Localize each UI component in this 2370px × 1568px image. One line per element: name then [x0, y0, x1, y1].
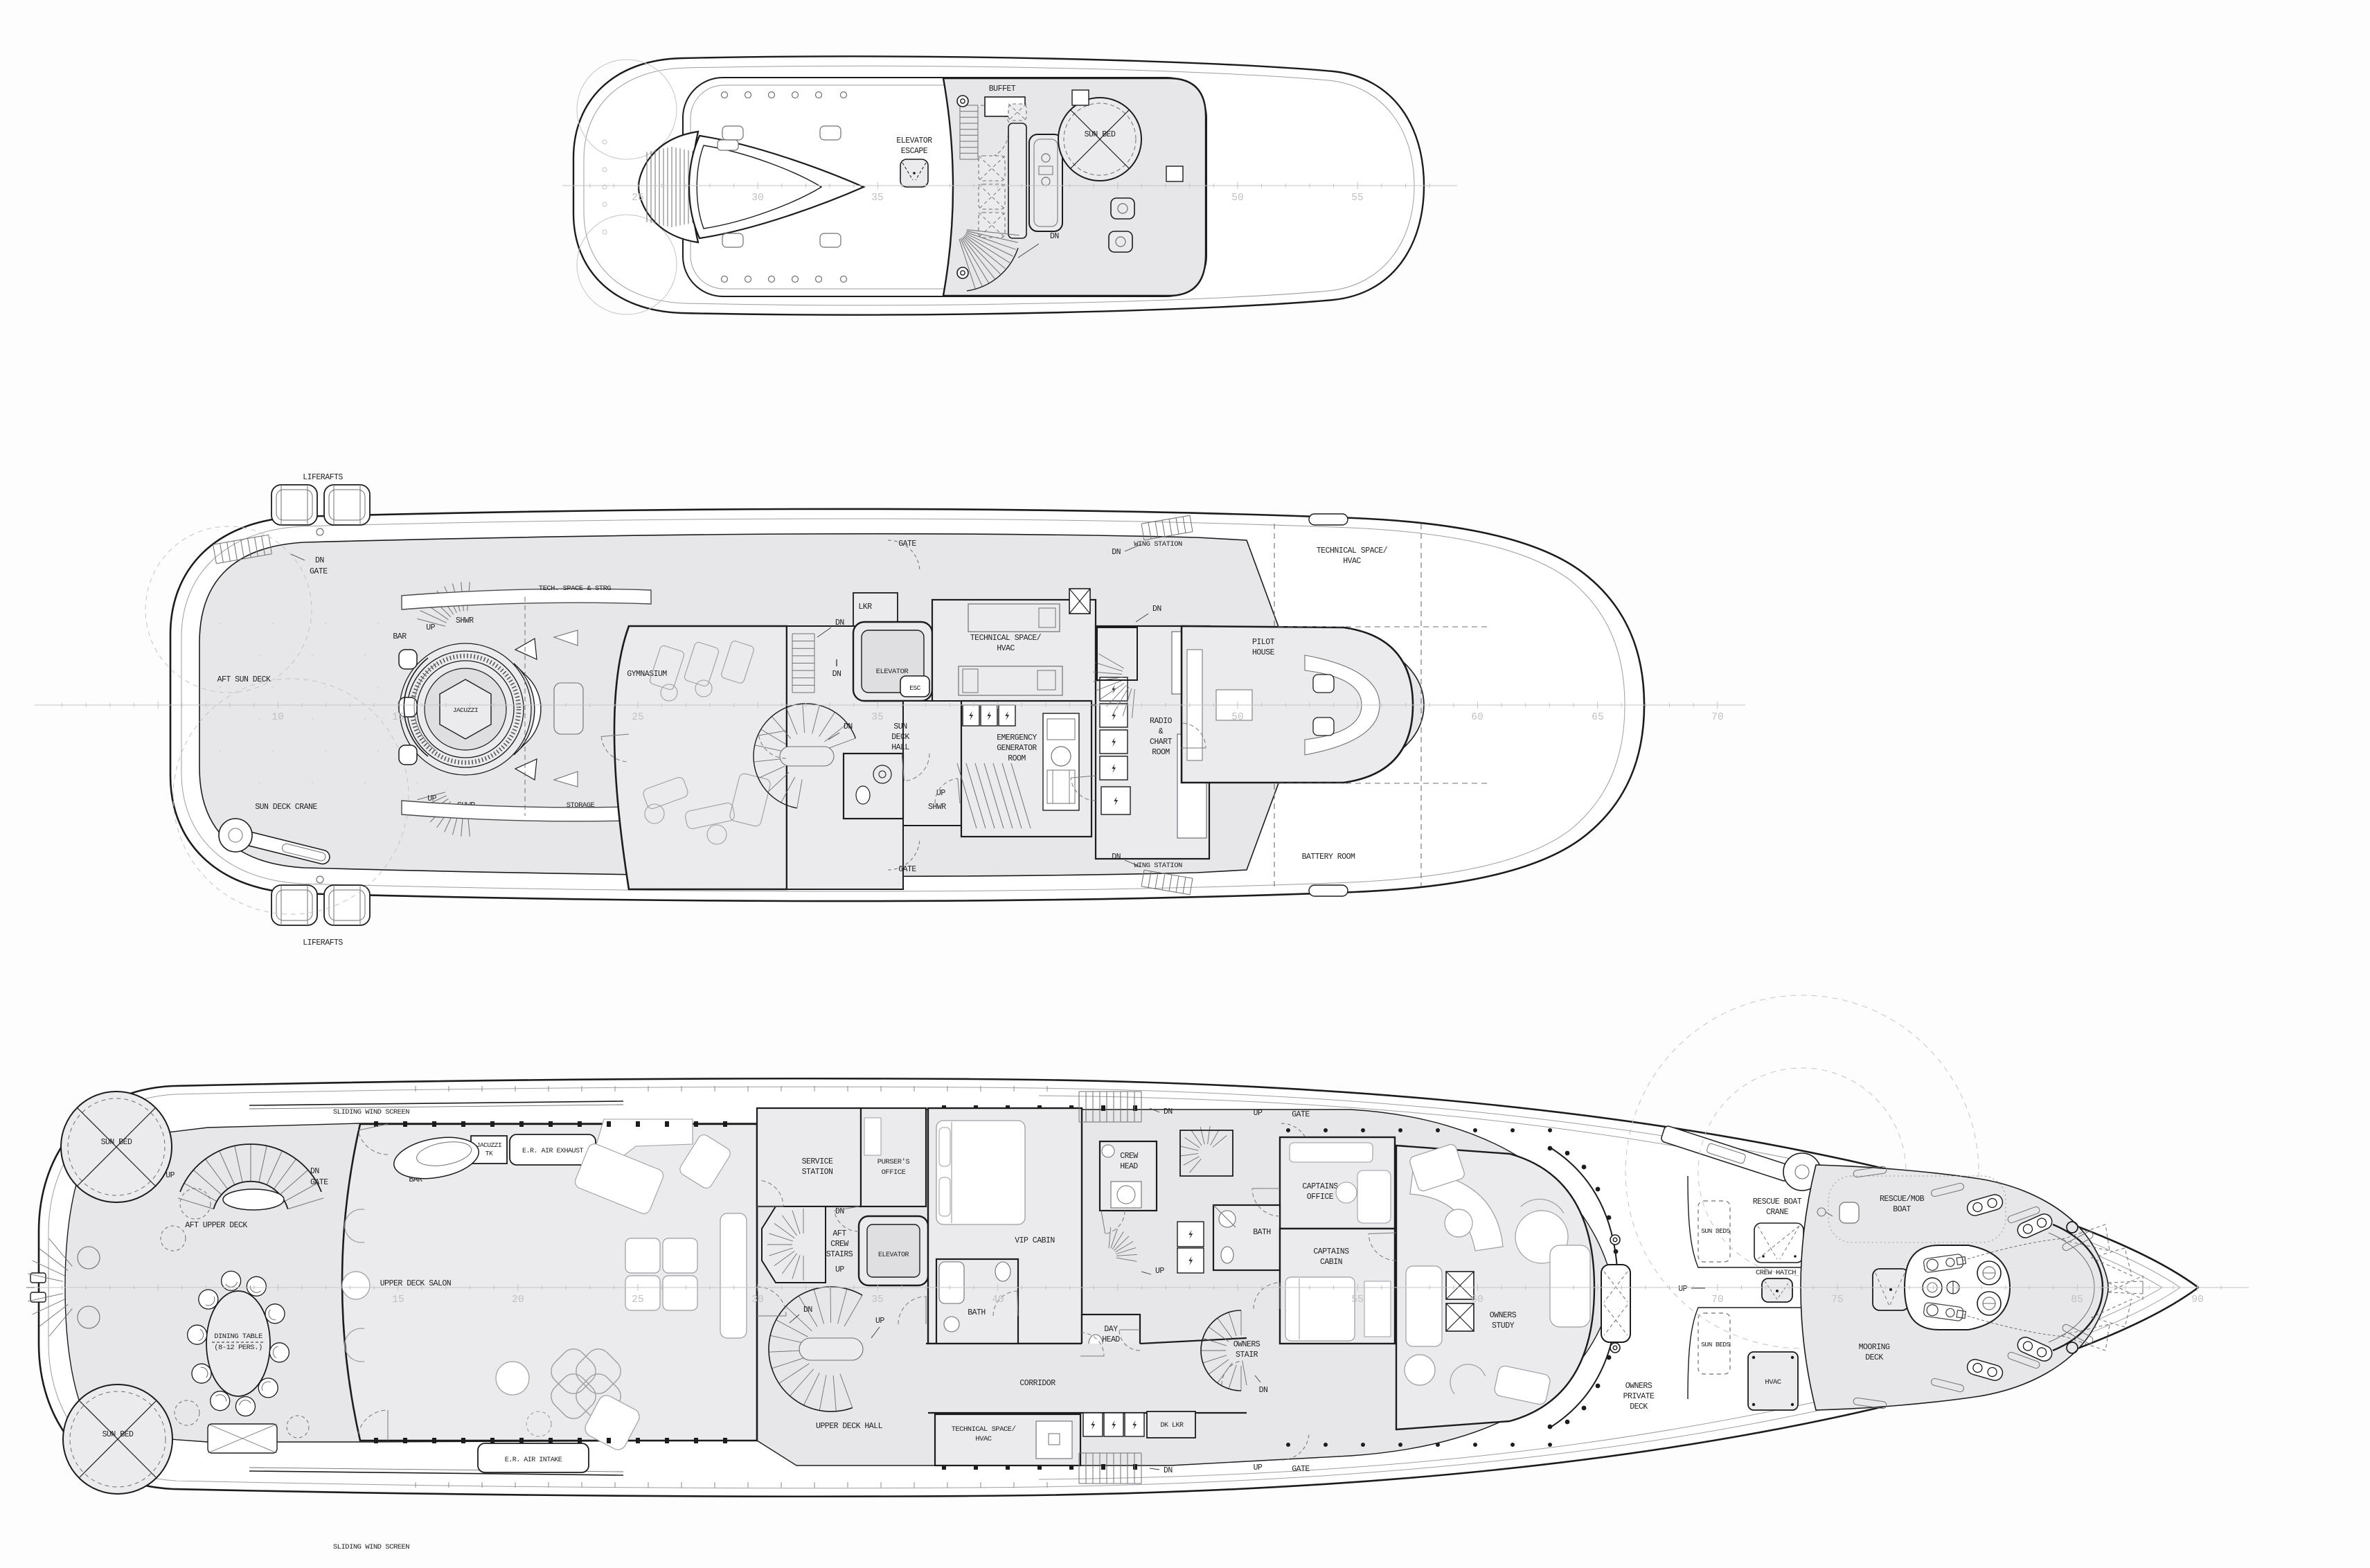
svg-text:25: 25 [632, 712, 643, 723]
svg-text:UP: UP [166, 1171, 175, 1180]
svg-text:AFT SUN DECK: AFT SUN DECK [217, 675, 271, 684]
svg-text:UP: UP [1155, 1267, 1164, 1276]
svg-text:DN: DN [1164, 1466, 1173, 1475]
svg-text:DN: DN [1152, 605, 1161, 614]
svg-text:TECH. SPACE & STRG: TECH. SPACE & STRG [539, 585, 612, 593]
svg-text:15: 15 [392, 1294, 404, 1306]
svg-text:BATH: BATH [1253, 1228, 1271, 1237]
svg-text:AFT UPPER DECK: AFT UPPER DECK [185, 1221, 247, 1230]
svg-text:BUFFET: BUFFET [989, 84, 1016, 93]
svg-text:LIFERAFTS: LIFERAFTS [303, 938, 343, 947]
svg-text:ELEVATOR: ELEVATOR [896, 136, 932, 145]
svg-text:15: 15 [392, 712, 404, 723]
svg-text:ESC: ESC [909, 684, 920, 692]
svg-text:DN: DN [1112, 853, 1121, 862]
svg-text:DN: DN [310, 1167, 319, 1176]
svg-text:BATH: BATH [968, 1308, 986, 1317]
svg-text:SHWR: SHWR [456, 616, 474, 625]
svg-text:GATE: GATE [1292, 1110, 1310, 1119]
svg-text:60: 60 [1471, 1294, 1483, 1306]
svg-text:GATE: GATE [1292, 1465, 1310, 1474]
svg-text:75: 75 [1831, 1294, 1843, 1306]
svg-text:DN: DN [1112, 548, 1121, 557]
svg-text:55: 55 [1351, 193, 1363, 204]
svg-text:UP: UP [936, 789, 945, 798]
svg-text:WING STATION: WING STATION [1134, 862, 1182, 870]
svg-text:35: 35 [871, 1294, 883, 1306]
svg-text:70: 70 [1711, 1294, 1723, 1306]
svg-text:DN: DN [1050, 232, 1059, 241]
svg-text:UPPER DECK SALON: UPPER DECK SALON [380, 1279, 451, 1288]
svg-text:JACUZZI: JACUZZI [453, 706, 478, 714]
svg-text:GATE: GATE [898, 865, 916, 874]
svg-text:LKR: LKR [858, 603, 872, 612]
svg-text:DN: DN [844, 722, 853, 731]
svg-text:CREW HATCH: CREW HATCH [1756, 1269, 1796, 1277]
svg-text:60: 60 [1471, 712, 1483, 723]
svg-text:UP: UP [427, 794, 436, 803]
svg-text:30: 30 [751, 193, 763, 204]
svg-text:LIFERAFTS: LIFERAFTS [303, 473, 343, 482]
svg-text:SLIDING WIND SCREEN: SLIDING WIND SCREEN [333, 1108, 409, 1116]
svg-text:SUN BED: SUN BED [103, 1430, 134, 1439]
svg-text:70: 70 [1711, 712, 1723, 723]
svg-text:90: 90 [2191, 1294, 2203, 1306]
svg-text:GATE: GATE [310, 1178, 328, 1187]
svg-text:UP: UP [426, 623, 435, 632]
svg-text:BATTERY ROOM: BATTERY ROOM [1302, 853, 1355, 862]
svg-text:SLIDING WIND SCREEN: SLIDING WIND SCREEN [333, 1543, 409, 1551]
svg-text:CORRIDOR: CORRIDOR [1019, 1379, 1055, 1388]
svg-text:UP: UP [1678, 1285, 1687, 1294]
svg-text:SUN BED: SUN BED [1085, 130, 1116, 139]
svg-text:SUN BEDS: SUN BEDS [1701, 1227, 1730, 1235]
svg-text:E.R. AIR EXHAUST: E.R. AIR EXHAUST [522, 1148, 584, 1155]
svg-text:VIP CABIN: VIP CABIN [1015, 1236, 1055, 1245]
svg-text:25: 25 [632, 1294, 643, 1306]
svg-text:SHWR: SHWR [928, 803, 946, 812]
svg-text:50: 50 [1231, 712, 1243, 723]
svg-text:SUN BED: SUN BED [101, 1138, 132, 1147]
svg-text:UP: UP [875, 1317, 884, 1326]
svg-text:SUN BEDS: SUN BEDS [1701, 1341, 1730, 1348]
svg-text:DN: DN [832, 670, 841, 679]
svg-text:DN: DN [835, 1207, 844, 1216]
svg-text:GYMNASIUM: GYMNASIUM [627, 670, 667, 679]
svg-text:ESCAPE: ESCAPE [901, 147, 928, 156]
svg-text:55: 55 [1351, 1294, 1363, 1306]
svg-text:DN: DN [1164, 1107, 1173, 1116]
svg-text:50: 50 [1231, 193, 1243, 204]
svg-text:ELEVATOR: ELEVATOR [876, 668, 909, 676]
svg-text:E.R. AIR INTAKE: E.R. AIR INTAKE [505, 1456, 562, 1464]
svg-text:DN: DN [803, 1306, 812, 1315]
svg-text:20: 20 [512, 1294, 524, 1306]
svg-text:UP: UP [835, 1265, 844, 1274]
svg-text:BAR: BAR [393, 632, 407, 641]
svg-text:40: 40 [992, 1294, 1004, 1306]
svg-text:HVAC: HVAC [1765, 1378, 1781, 1387]
svg-text:DK LKR: DK LKR [1160, 1422, 1184, 1429]
svg-text:35: 35 [871, 712, 883, 723]
svg-text:10: 10 [271, 712, 283, 723]
svg-text:DN: DN [1259, 1386, 1268, 1395]
svg-text:STORAGE: STORAGE [567, 801, 595, 810]
svg-text:SUN DECK CRANE: SUN DECK CRANE [255, 803, 317, 812]
svg-text:ELEVATOR: ELEVATOR [878, 1251, 909, 1259]
svg-text:SUNDECKHALL: SUNDECKHALL [891, 722, 909, 752]
svg-text:65: 65 [1592, 712, 1603, 723]
svg-text:30: 30 [751, 1294, 763, 1306]
svg-text:DN: DN [835, 618, 844, 627]
svg-text:85: 85 [2071, 1294, 2083, 1306]
svg-text:UP: UP [1254, 1109, 1263, 1118]
svg-text:UP: UP [1254, 1463, 1263, 1472]
svg-text:DN: DN [315, 556, 324, 565]
svg-text:35: 35 [871, 193, 883, 204]
svg-text:25: 25 [632, 193, 643, 204]
svg-text:GATE: GATE [310, 567, 328, 576]
svg-text:UPPER DECK HALL: UPPER DECK HALL [816, 1422, 883, 1431]
